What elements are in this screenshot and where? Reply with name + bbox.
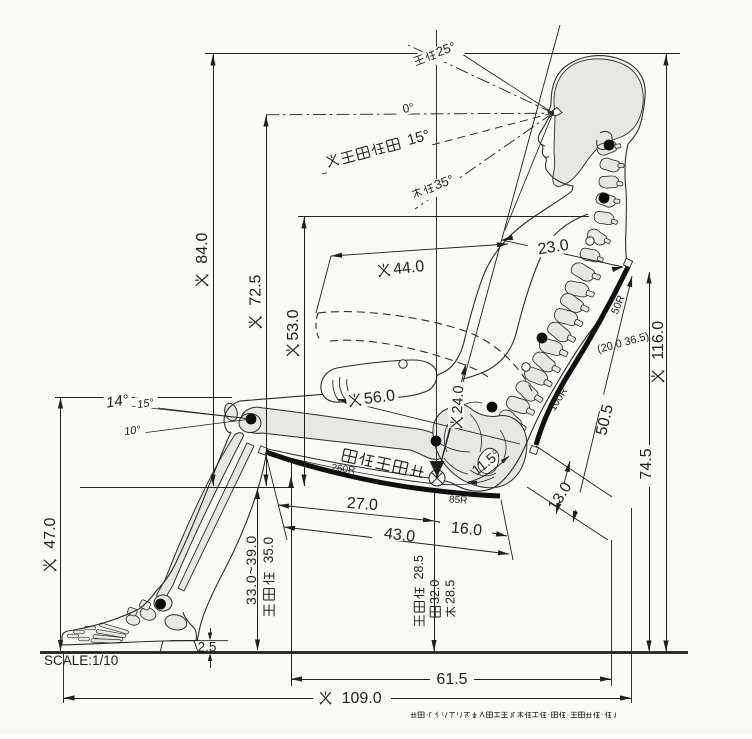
svg-text:85R: 85R <box>449 494 468 506</box>
svg-text:72.5: 72.5 <box>248 274 265 305</box>
svg-text:32.0: 32.0 <box>428 580 442 604</box>
svg-text:109.0: 109.0 <box>342 690 382 707</box>
svg-text:10°: 10° <box>124 424 143 438</box>
svg-text:84.0: 84.0 <box>194 232 211 263</box>
svg-text:44.0: 44.0 <box>392 258 425 278</box>
svg-text:28.5: 28.5 <box>412 555 426 579</box>
svg-text:14°: 14° <box>105 392 130 412</box>
svg-text:24.0: 24.0 <box>450 385 467 414</box>
svg-text:61.5: 61.5 <box>436 671 467 688</box>
svg-text:47.0: 47.0 <box>42 517 59 548</box>
svg-text:116.0: 116.0 <box>650 321 667 360</box>
svg-text:33.0~39.0: 33.0~39.0 <box>243 535 259 605</box>
svg-text:15°: 15° <box>137 397 156 411</box>
svg-text:27.0: 27.0 <box>346 495 378 514</box>
svg-text:74.5: 74.5 <box>638 448 655 479</box>
svg-text:28.5: 28.5 <box>444 580 458 604</box>
svg-text:16.0: 16.0 <box>450 519 483 539</box>
svg-text:53.0: 53.0 <box>285 309 302 340</box>
svg-text:35.0: 35.0 <box>261 537 276 563</box>
svg-text:2.5: 2.5 <box>198 640 217 655</box>
svg-text:SCALE:1/10: SCALE:1/10 <box>44 653 118 668</box>
